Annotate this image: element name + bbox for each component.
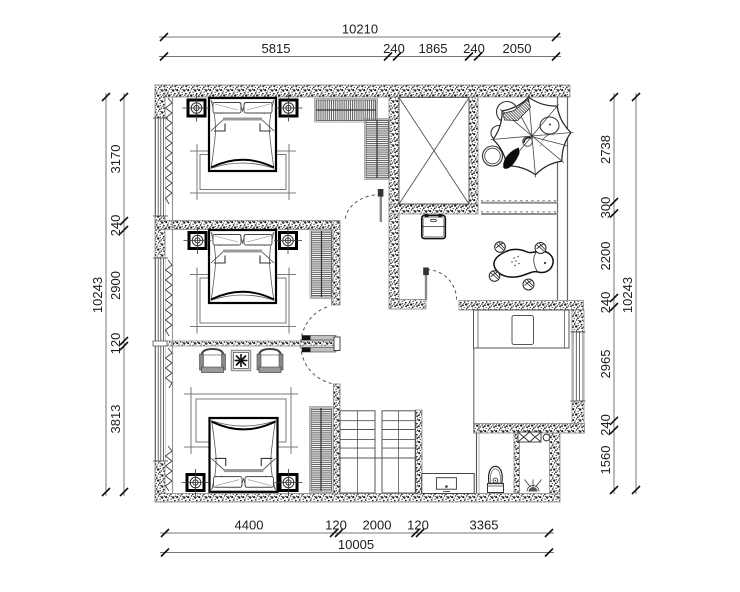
svg-text:240: 240 xyxy=(598,292,613,314)
svg-text:10243: 10243 xyxy=(90,277,105,313)
svg-text:2738: 2738 xyxy=(598,135,613,164)
svg-text:300: 300 xyxy=(598,197,613,219)
svg-text:4400: 4400 xyxy=(235,518,264,533)
svg-text:2900: 2900 xyxy=(108,271,123,300)
svg-text:1560: 1560 xyxy=(598,446,613,475)
svg-text:120: 120 xyxy=(407,518,429,533)
svg-text:120: 120 xyxy=(325,518,347,533)
svg-text:2965: 2965 xyxy=(598,350,613,379)
svg-text:2200: 2200 xyxy=(598,242,613,271)
svg-text:240: 240 xyxy=(598,414,613,436)
svg-text:1865: 1865 xyxy=(419,41,448,56)
svg-text:2050: 2050 xyxy=(503,41,532,56)
svg-text:10243: 10243 xyxy=(620,277,635,313)
svg-text:5815: 5815 xyxy=(262,41,291,56)
svg-text:240: 240 xyxy=(383,41,405,56)
svg-text:240: 240 xyxy=(108,215,123,237)
svg-text:2000: 2000 xyxy=(363,518,392,533)
svg-text:3170: 3170 xyxy=(108,145,123,174)
svg-text:10210: 10210 xyxy=(342,22,378,37)
svg-text:3813: 3813 xyxy=(108,405,123,434)
svg-text:120: 120 xyxy=(108,333,123,355)
svg-text:3365: 3365 xyxy=(470,518,499,533)
svg-text:10005: 10005 xyxy=(338,537,374,552)
svg-text:240: 240 xyxy=(463,41,485,56)
